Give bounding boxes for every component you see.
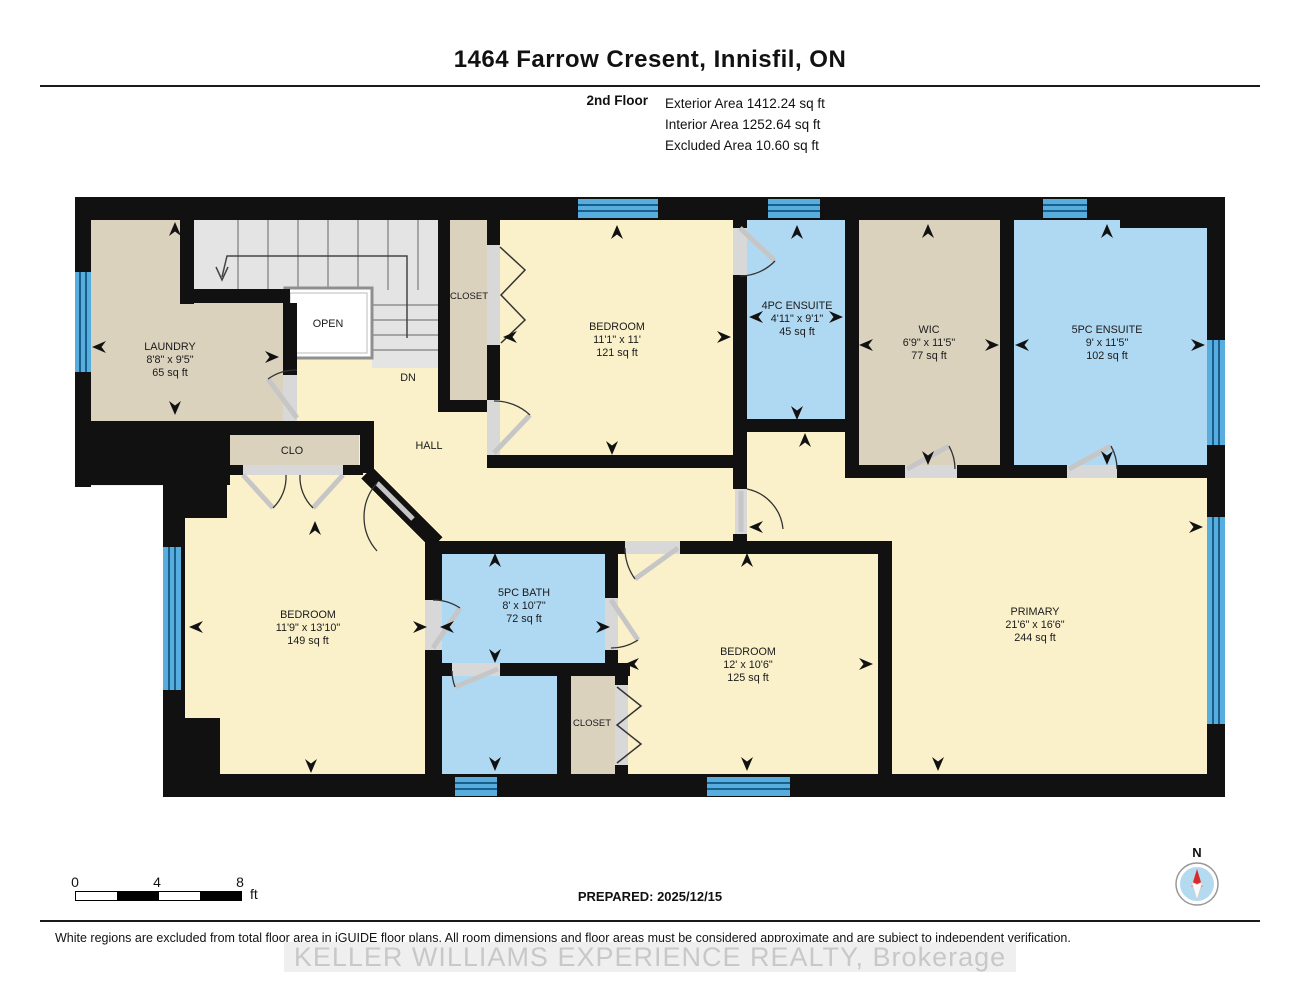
hall-label: HALL bbox=[415, 440, 442, 452]
dn-label: DN bbox=[400, 372, 416, 384]
stat-excluded: Excluded Area 10.60 sq ft bbox=[665, 135, 825, 156]
room-area: 45 sq ft bbox=[779, 326, 814, 338]
stat-interior: Interior Area 1252.64 sq ft bbox=[665, 114, 825, 135]
room-area: 149 sq ft bbox=[287, 635, 328, 647]
room-area: 121 sq ft bbox=[596, 347, 637, 359]
room-dims: 6'9" x 11'5" bbox=[903, 337, 956, 349]
room-dims: 4'11" x 9'1" bbox=[771, 313, 824, 325]
brokerage-watermark-text: KELLER WILLIAMS EXPERIENCE REALTY, Broke… bbox=[284, 942, 1016, 972]
room-label: PRIMARY bbox=[1011, 606, 1060, 618]
area-stats: Exterior Area 1412.24 sq ft Interior Are… bbox=[665, 93, 825, 156]
room-label: 5PC BATH bbox=[498, 587, 550, 599]
room-dims: 8' x 10'7" bbox=[502, 600, 546, 612]
room-dims: 9' x 11'5" bbox=[1086, 337, 1129, 349]
scale-tick: 0 bbox=[65, 874, 85, 890]
floor-plan: LAUNDRY 8'8" x 9'5" 65 sq ft BEDROOM 11'… bbox=[75, 197, 1225, 797]
room-area: 244 sq ft bbox=[1014, 632, 1055, 644]
clo-label: CLO bbox=[281, 445, 303, 457]
room-label: BEDROOM bbox=[720, 646, 776, 658]
scale-tick: 8 bbox=[230, 874, 250, 890]
brokerage-watermark: KELLER WILLIAMS EXPERIENCE REALTY, Broke… bbox=[0, 942, 1300, 973]
footer-divider bbox=[40, 920, 1260, 922]
compass-north-label: N bbox=[1171, 845, 1223, 860]
room-label: BEDROOM bbox=[589, 321, 645, 333]
closet-top-label: CLOSET bbox=[450, 291, 488, 302]
room-area: 125 sq ft bbox=[727, 672, 768, 684]
room-area: 72 sq ft bbox=[506, 613, 541, 625]
room-dims: 21'6" x 16'6" bbox=[1005, 619, 1064, 631]
room-label: WIC bbox=[919, 324, 940, 336]
room-label: 4PC ENSUITE bbox=[762, 300, 833, 312]
room-area: 77 sq ft bbox=[911, 350, 946, 362]
compass-rose-icon bbox=[1173, 860, 1221, 908]
room-dims: 12' x 10'6" bbox=[723, 659, 773, 671]
exterior-cutout bbox=[75, 486, 163, 797]
room-label: 5PC ENSUITE bbox=[1072, 324, 1143, 336]
room-label: BEDROOM bbox=[280, 609, 336, 621]
stat-exterior: Exterior Area 1412.24 sq ft bbox=[665, 93, 825, 114]
room-label: LAUNDRY bbox=[144, 341, 195, 353]
room-dims: 11'9" x 13'10" bbox=[276, 622, 341, 634]
room-dims: 8'8" x 9'5" bbox=[146, 354, 193, 366]
closet-bottom-label: CLOSET bbox=[573, 718, 611, 729]
prepared-date: PREPARED: 2025/12/15 bbox=[0, 889, 1300, 904]
room-area: 102 sq ft bbox=[1086, 350, 1127, 362]
header-divider bbox=[40, 85, 1260, 87]
floor-label: 2nd Floor bbox=[0, 93, 648, 108]
open-label: OPEN bbox=[313, 318, 344, 330]
scale-tick: 4 bbox=[147, 874, 167, 890]
page-title: 1464 Farrow Cresent, Innisfil, ON bbox=[0, 46, 1300, 74]
room-closet-top bbox=[450, 220, 487, 400]
room-area: 65 sq ft bbox=[152, 367, 187, 379]
compass: N bbox=[1171, 845, 1223, 911]
room-dims: 11'1" x 11' bbox=[593, 334, 641, 346]
room-wc bbox=[437, 676, 557, 774]
